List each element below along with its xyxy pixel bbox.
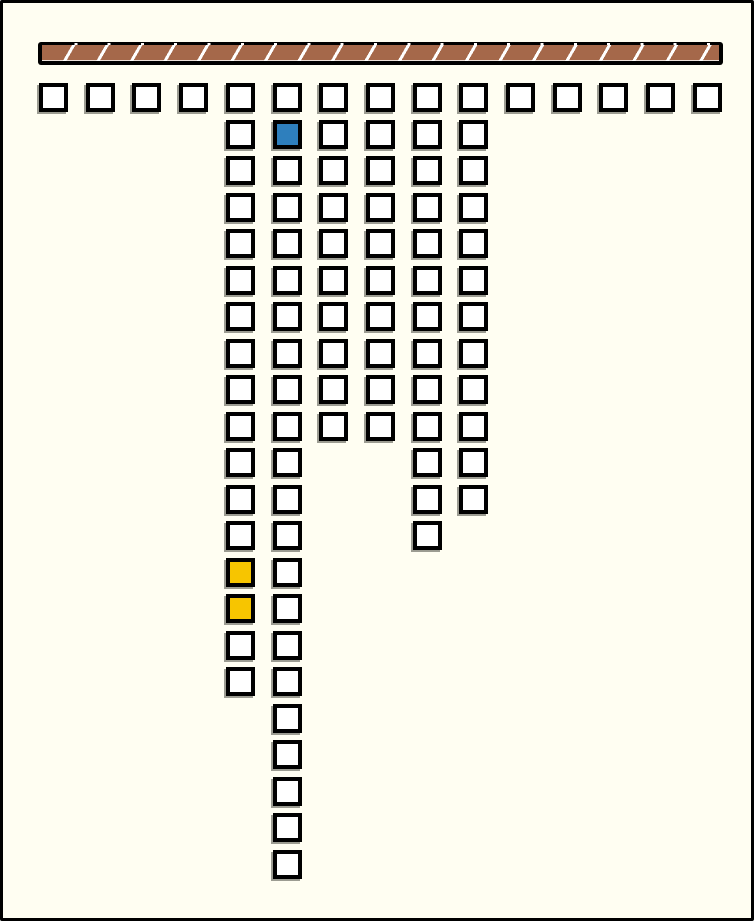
board-cell[interactable] [273, 156, 302, 185]
board-cell[interactable] [39, 83, 68, 112]
blue-cell[interactable] [273, 120, 302, 149]
board-cell[interactable] [413, 448, 442, 477]
board-cell[interactable] [86, 83, 115, 112]
board-cell[interactable] [319, 266, 348, 295]
board-cell[interactable] [366, 339, 395, 368]
board-cell[interactable] [413, 339, 442, 368]
board-cell[interactable] [273, 83, 302, 112]
yellow-cell[interactable] [226, 594, 255, 623]
board-cell[interactable] [226, 266, 255, 295]
board-cell[interactable] [693, 83, 722, 112]
board-cell[interactable] [273, 740, 302, 769]
board-cell[interactable] [413, 485, 442, 514]
board-cell[interactable] [319, 83, 348, 112]
board-cell[interactable] [553, 83, 582, 112]
board-cell[interactable] [366, 229, 395, 258]
board-cell[interactable] [459, 156, 488, 185]
board-cell[interactable] [226, 412, 255, 441]
board-cell[interactable] [413, 412, 442, 441]
board-cell[interactable] [319, 302, 348, 331]
board-cell[interactable] [273, 448, 302, 477]
board-cell[interactable] [319, 375, 348, 404]
board-cell[interactable] [273, 375, 302, 404]
board-cell[interactable] [226, 193, 255, 222]
beam-stripes [42, 45, 719, 61]
board-cell[interactable] [226, 631, 255, 660]
beam-tick-marks [44, 43, 717, 45]
app-window [0, 0, 754, 921]
board-cell[interactable] [459, 193, 488, 222]
board-cell[interactable] [226, 521, 255, 550]
board-cell[interactable] [413, 302, 442, 331]
board-cell[interactable] [273, 704, 302, 733]
board-cell[interactable] [226, 485, 255, 514]
board-cell[interactable] [273, 777, 302, 806]
board-cell[interactable] [226, 229, 255, 258]
board-cell[interactable] [179, 83, 208, 112]
board-cell[interactable] [459, 339, 488, 368]
board-cell[interactable] [413, 83, 442, 112]
board-cell[interactable] [366, 412, 395, 441]
board-cell[interactable] [226, 667, 255, 696]
board-cell[interactable] [132, 83, 161, 112]
board-cell[interactable] [366, 156, 395, 185]
board-cell[interactable] [226, 83, 255, 112]
board-cell[interactable] [646, 83, 675, 112]
board-cell[interactable] [459, 120, 488, 149]
board-cell[interactable] [273, 485, 302, 514]
board-cell[interactable] [413, 229, 442, 258]
board-cell[interactable] [459, 375, 488, 404]
hatched-beam [38, 42, 723, 65]
board-cell[interactable] [413, 156, 442, 185]
board-cell[interactable] [459, 448, 488, 477]
board-cell[interactable] [413, 193, 442, 222]
board-cell[interactable] [226, 339, 255, 368]
board-cell[interactable] [226, 120, 255, 149]
yellow-cell[interactable] [226, 558, 255, 587]
board-cell[interactable] [319, 120, 348, 149]
board-cell[interactable] [273, 229, 302, 258]
board-cell[interactable] [226, 375, 255, 404]
board-cell[interactable] [366, 302, 395, 331]
board-cell[interactable] [459, 266, 488, 295]
board-cell[interactable] [319, 339, 348, 368]
board-cell[interactable] [273, 558, 302, 587]
board-cell[interactable] [413, 266, 442, 295]
board-cell[interactable] [319, 412, 348, 441]
board-cell[interactable] [226, 156, 255, 185]
board-cell[interactable] [459, 412, 488, 441]
board-cell[interactable] [319, 193, 348, 222]
board-cell[interactable] [366, 83, 395, 112]
board-cell[interactable] [273, 667, 302, 696]
board-cell[interactable] [226, 448, 255, 477]
board-cell[interactable] [273, 521, 302, 550]
board-cell[interactable] [273, 412, 302, 441]
board-cell[interactable] [459, 485, 488, 514]
board-cell[interactable] [459, 83, 488, 112]
board-cell[interactable] [273, 850, 302, 879]
board-cell[interactable] [273, 631, 302, 660]
board-cell[interactable] [366, 266, 395, 295]
board-cell[interactable] [506, 83, 535, 112]
board-cell[interactable] [413, 120, 442, 149]
board-cell[interactable] [273, 302, 302, 331]
board-cell[interactable] [599, 83, 628, 112]
board-cell[interactable] [413, 375, 442, 404]
board-cell[interactable] [273, 193, 302, 222]
board-cell[interactable] [273, 813, 302, 842]
board-cell[interactable] [226, 302, 255, 331]
board-cell[interactable] [366, 193, 395, 222]
board-cell[interactable] [319, 156, 348, 185]
board-cell[interactable] [273, 266, 302, 295]
board-cell[interactable] [319, 229, 348, 258]
board-cell[interactable] [273, 594, 302, 623]
board-cell[interactable] [366, 375, 395, 404]
board-cell[interactable] [366, 120, 395, 149]
board-cell[interactable] [459, 302, 488, 331]
board-cell[interactable] [413, 521, 442, 550]
board-cell[interactable] [273, 339, 302, 368]
board-cell[interactable] [459, 229, 488, 258]
